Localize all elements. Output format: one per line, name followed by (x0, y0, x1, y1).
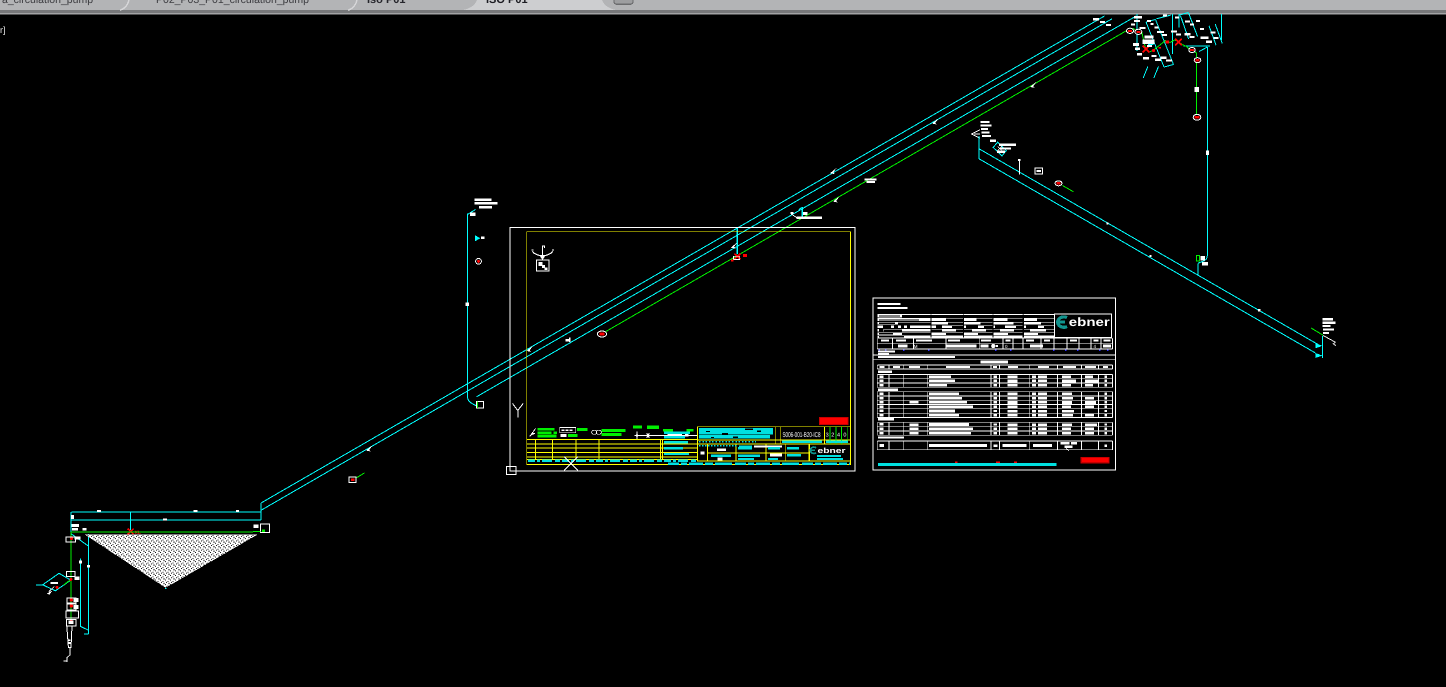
svg-text:ISO P01: ISO P01 (486, 0, 528, 6)
svg-text:4: 4 (837, 433, 840, 439)
svg-text:3: 3 (826, 433, 829, 439)
svg-text:ebner: ebner (818, 446, 846, 455)
svg-text:a_circulation_pump: a_circulation_pump (2, 0, 93, 6)
svg-text:2: 2 (831, 433, 834, 439)
svg-text:S006-001-B20-IC8: S006-001-B20-IC8 (783, 432, 821, 439)
svg-text:r]: r] (0, 25, 6, 35)
svg-text:M: M (914, 344, 918, 349)
svg-text:Iso P01: Iso P01 (367, 0, 406, 6)
svg-text:0: 0 (843, 433, 846, 439)
svg-text:ebner: ebner (1069, 315, 1110, 329)
svg-text:P02_P03_P01_circulation_pump: P02_P03_P01_circulation_pump (156, 0, 309, 6)
